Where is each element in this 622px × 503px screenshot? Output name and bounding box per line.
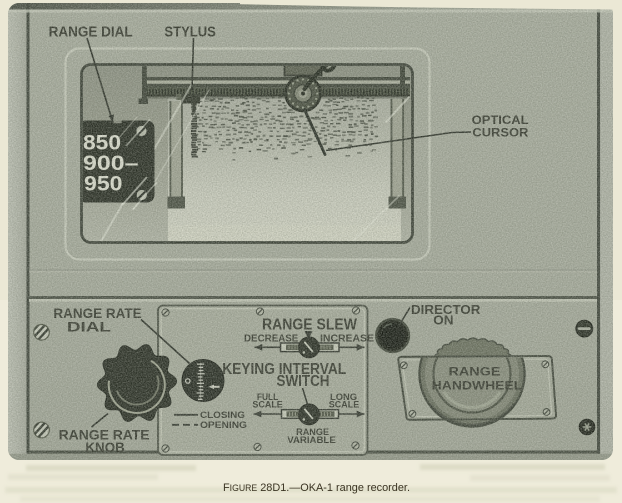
svg-text:FIGURE 28D1.—OKA-1 range recor: FIGURE 28D1.—OKA-1 range recorder. xyxy=(223,482,410,494)
